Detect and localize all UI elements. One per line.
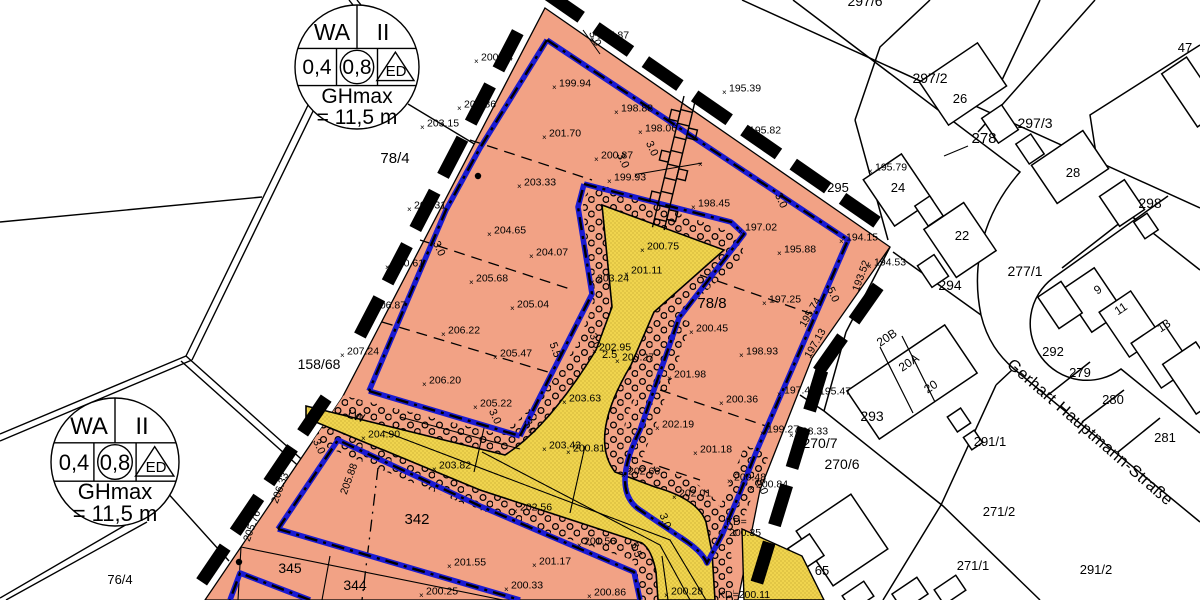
svg-text:201.18: 201.18 bbox=[700, 444, 732, 456]
svg-text:271/2: 271/2 bbox=[983, 504, 1016, 519]
svg-text:×: × bbox=[691, 203, 696, 212]
svg-text:×: × bbox=[504, 585, 509, 594]
svg-text:201.55: 201.55 bbox=[454, 557, 486, 569]
svg-text:201.98: 201.98 bbox=[674, 369, 706, 381]
svg-text:×: × bbox=[529, 252, 534, 261]
svg-text:198.45: 198.45 bbox=[698, 198, 730, 210]
svg-text:×: × bbox=[621, 471, 626, 480]
svg-text:195.47: 195.47 bbox=[819, 386, 851, 398]
svg-text:279: 279 bbox=[1069, 365, 1091, 380]
svg-text:203.15: 203.15 bbox=[427, 118, 459, 130]
svg-text:291/1: 291/1 bbox=[974, 434, 1007, 449]
svg-text:200.61: 200.61 bbox=[392, 258, 424, 270]
svg-text:203.33: 203.33 bbox=[524, 177, 556, 189]
svg-text:×: × bbox=[432, 465, 437, 474]
svg-text:195.88: 195.88 bbox=[784, 244, 816, 256]
svg-text:200.45: 200.45 bbox=[696, 323, 728, 335]
svg-text:199.94: 199.94 bbox=[559, 78, 591, 90]
svg-text:×: × bbox=[739, 351, 744, 360]
svg-text:195.82: 195.82 bbox=[749, 125, 781, 137]
svg-text:GHmax: GHmax bbox=[321, 85, 393, 108]
svg-text:×: × bbox=[667, 374, 672, 383]
svg-text:×: × bbox=[789, 431, 794, 440]
svg-text:×: × bbox=[441, 330, 446, 339]
svg-text:×: × bbox=[587, 592, 592, 600]
svg-text:×: × bbox=[532, 561, 537, 570]
svg-text:= 11,5 m: = 11,5 m bbox=[73, 501, 158, 526]
svg-text:×: × bbox=[749, 484, 754, 493]
svg-text:292: 292 bbox=[1042, 344, 1064, 359]
svg-text:204.65: 204.65 bbox=[494, 225, 526, 237]
svg-text:291/2: 291/2 bbox=[1080, 562, 1113, 577]
svg-text:200.27: 200.27 bbox=[622, 352, 654, 364]
svg-text:270/7: 270/7 bbox=[802, 435, 837, 451]
svg-text:×: × bbox=[777, 390, 782, 399]
svg-text:×: × bbox=[447, 562, 452, 571]
svg-text:×: × bbox=[638, 128, 643, 137]
svg-text:ED: ED bbox=[386, 63, 407, 80]
svg-text:199.93: 199.93 bbox=[614, 172, 646, 184]
svg-text:201.70: 201.70 bbox=[549, 128, 581, 140]
svg-text:206.22: 206.22 bbox=[448, 325, 480, 337]
svg-text:×: × bbox=[727, 477, 732, 486]
svg-text:200.33: 200.33 bbox=[511, 580, 543, 592]
svg-text:200.36: 200.36 bbox=[726, 394, 758, 406]
svg-text:×: × bbox=[513, 507, 518, 516]
svg-text:345: 345 bbox=[278, 560, 302, 576]
svg-text:278: 278 bbox=[971, 130, 996, 147]
svg-text:×: × bbox=[457, 104, 462, 113]
svg-text:×: × bbox=[361, 434, 366, 443]
svg-text:297/2: 297/2 bbox=[912, 70, 947, 86]
svg-text:0,4: 0,4 bbox=[59, 450, 90, 475]
svg-text:×: × bbox=[474, 57, 479, 66]
svg-text:×: × bbox=[419, 591, 424, 600]
svg-text:×: × bbox=[487, 230, 492, 239]
svg-text:×: × bbox=[760, 429, 765, 438]
svg-text:201.86: 201.86 bbox=[464, 99, 496, 111]
svg-text:×: × bbox=[868, 167, 873, 176]
svg-text:×: × bbox=[655, 424, 660, 433]
svg-text:205.68: 205.68 bbox=[476, 273, 508, 285]
svg-text:×: × bbox=[664, 591, 669, 600]
svg-text:×: × bbox=[340, 351, 345, 360]
svg-text:200.86: 200.86 bbox=[594, 587, 626, 599]
svg-text:22: 22 bbox=[955, 228, 969, 243]
svg-text:×: × bbox=[542, 133, 547, 142]
svg-text:×: × bbox=[742, 130, 747, 139]
svg-text:76/4: 76/4 bbox=[107, 572, 132, 587]
svg-text:47: 47 bbox=[1178, 40, 1192, 55]
svg-text:204.31: 204.31 bbox=[414, 200, 446, 212]
svg-text:II: II bbox=[135, 413, 148, 440]
svg-text:ED: ED bbox=[146, 459, 167, 476]
svg-text:0,8: 0,8 bbox=[100, 450, 131, 475]
svg-text:×: × bbox=[594, 155, 599, 164]
svg-text:×: × bbox=[738, 227, 743, 236]
svg-text:197.02: 197.02 bbox=[745, 222, 777, 234]
svg-text:298: 298 bbox=[1138, 195, 1162, 211]
svg-text:×: × bbox=[640, 246, 645, 255]
svg-text:207.24: 207.24 bbox=[347, 346, 379, 358]
svg-text:201.17: 201.17 bbox=[539, 556, 571, 568]
svg-text:297/3: 297/3 bbox=[1017, 115, 1052, 131]
svg-text:78/8: 78/8 bbox=[697, 295, 726, 312]
svg-text:293: 293 bbox=[860, 408, 884, 424]
svg-text:×: × bbox=[577, 541, 582, 550]
svg-text:197.25: 197.25 bbox=[769, 294, 801, 306]
svg-text:II: II bbox=[377, 19, 390, 45]
svg-text:KD=200.11: KD=200.11 bbox=[718, 589, 770, 600]
svg-text:206.20: 206.20 bbox=[429, 375, 461, 387]
svg-text:×: × bbox=[422, 380, 427, 389]
svg-text:×: × bbox=[493, 353, 498, 362]
svg-text:294: 294 bbox=[938, 277, 962, 293]
svg-text:×: × bbox=[517, 182, 522, 191]
svg-text:×: × bbox=[812, 391, 817, 400]
svg-text:×: × bbox=[777, 249, 782, 258]
svg-text:×: × bbox=[510, 304, 515, 313]
svg-text:×: × bbox=[624, 270, 629, 279]
svg-text:×: × bbox=[722, 88, 727, 97]
svg-text:202.66: 202.66 bbox=[628, 466, 660, 478]
svg-text:×: × bbox=[590, 278, 595, 287]
svg-text:×: × bbox=[693, 449, 698, 458]
svg-text:201.11: 201.11 bbox=[631, 265, 662, 277]
svg-text:277/1: 277/1 bbox=[1007, 263, 1042, 279]
svg-text:202.01: 202.01 bbox=[679, 488, 711, 500]
svg-text:×: × bbox=[407, 205, 412, 214]
svg-text:×: × bbox=[614, 108, 619, 117]
svg-text:28: 28 bbox=[1066, 165, 1080, 180]
svg-text:203.82: 203.82 bbox=[439, 460, 471, 472]
svg-text:2.5: 2.5 bbox=[602, 349, 617, 361]
svg-text:×: × bbox=[469, 278, 474, 287]
svg-text:= 11,5 m: = 11,5 m bbox=[317, 106, 398, 129]
svg-text:195.79: 195.79 bbox=[875, 162, 907, 174]
svg-text:158/68: 158/68 bbox=[298, 356, 341, 372]
svg-text:65: 65 bbox=[815, 563, 829, 578]
svg-text:202.56: 202.56 bbox=[520, 502, 552, 514]
svg-text:280: 280 bbox=[1102, 392, 1124, 407]
svg-text:200.04: 200.04 bbox=[481, 52, 513, 64]
svg-text:×: × bbox=[839, 237, 844, 246]
svg-text:×: × bbox=[672, 493, 677, 502]
svg-text:×: × bbox=[542, 445, 547, 454]
svg-text:×: × bbox=[385, 263, 390, 272]
svg-text:202.19: 202.19 bbox=[662, 419, 694, 431]
svg-text:78/4: 78/4 bbox=[380, 150, 409, 167]
svg-text:0,8: 0,8 bbox=[342, 56, 371, 79]
svg-text:×: × bbox=[473, 403, 478, 412]
svg-text:203.43: 203.43 bbox=[549, 440, 581, 452]
svg-text:×: × bbox=[698, 160, 703, 169]
svg-text:198.88: 198.88 bbox=[621, 103, 653, 115]
svg-text:195.39: 195.39 bbox=[729, 83, 761, 95]
svg-text:203.63: 203.63 bbox=[569, 393, 601, 405]
svg-text:200.35: 200.35 bbox=[729, 527, 761, 539]
svg-text:281: 281 bbox=[1154, 430, 1176, 445]
svg-text:344: 344 bbox=[343, 577, 367, 593]
svg-text:297/6: 297/6 bbox=[847, 0, 882, 9]
svg-text:WA: WA bbox=[70, 413, 108, 440]
svg-text:205.04: 205.04 bbox=[517, 299, 549, 311]
svg-text:205.47: 205.47 bbox=[500, 348, 532, 360]
svg-text:206.87: 206.87 bbox=[374, 300, 406, 312]
svg-text:26: 26 bbox=[953, 91, 967, 106]
svg-text:271/1: 271/1 bbox=[957, 558, 990, 573]
svg-text:204.90: 204.90 bbox=[368, 429, 400, 441]
svg-text:×: × bbox=[607, 177, 612, 186]
svg-text:194.15: 194.15 bbox=[846, 232, 878, 244]
svg-text:201.56: 201.56 bbox=[584, 536, 616, 548]
svg-text:×: × bbox=[762, 299, 767, 308]
svg-text:×: × bbox=[552, 83, 557, 92]
svg-text:WA: WA bbox=[314, 19, 351, 45]
svg-text:200.25: 200.25 bbox=[426, 586, 458, 598]
svg-text:295: 295 bbox=[827, 180, 849, 195]
svg-text:×: × bbox=[367, 305, 372, 314]
svg-text:270/6: 270/6 bbox=[824, 456, 859, 472]
svg-text:204.07: 204.07 bbox=[536, 247, 568, 259]
svg-text:342: 342 bbox=[404, 511, 429, 528]
svg-text:0,4: 0,4 bbox=[302, 56, 332, 79]
svg-text:198.06: 198.06 bbox=[645, 123, 677, 135]
svg-text:×: × bbox=[562, 398, 567, 407]
svg-text:×: × bbox=[719, 399, 724, 408]
svg-text:200.75: 200.75 bbox=[647, 241, 679, 253]
svg-text:24: 24 bbox=[891, 180, 905, 195]
svg-text:198.93: 198.93 bbox=[746, 346, 778, 358]
svg-text:194.53: 194.53 bbox=[874, 257, 906, 269]
svg-text:×: × bbox=[420, 123, 425, 132]
svg-text:200.28: 200.28 bbox=[671, 586, 703, 598]
svg-text:199.27: 199.27 bbox=[767, 424, 799, 436]
svg-text:×: × bbox=[689, 328, 694, 337]
